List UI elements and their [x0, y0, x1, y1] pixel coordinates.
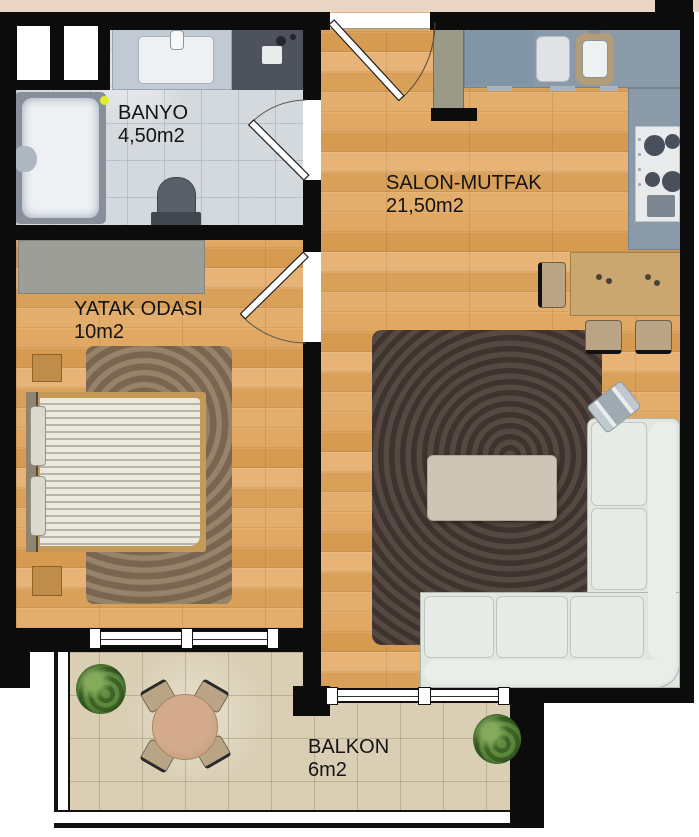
room-name: BALKON — [308, 736, 389, 759]
room-label-yatak-odasi: YATAK ODASI 10m2 — [74, 298, 203, 344]
room-label-salon-mutfak: SALON-MUTFAK 21,50m2 — [386, 172, 542, 218]
door-swing-overlay — [0, 0, 699, 837]
room-name: SALON-MUTFAK — [386, 172, 542, 195]
room-label-banyo: BANYO 4,50m2 — [118, 102, 188, 148]
room-area: 4,50m2 — [118, 125, 188, 148]
bedroom-door-leaf — [240, 252, 308, 319]
room-label-balkon: BALKON 6m2 — [308, 736, 389, 782]
floor-plan: BANYO 4,50m2 SALON-MUTFAK 21,50m2 YATAK … — [0, 0, 699, 837]
room-area: 10m2 — [74, 321, 203, 344]
room-area: 6m2 — [308, 759, 389, 782]
entrance-door-leaf — [329, 20, 404, 101]
room-area: 21,50m2 — [386, 195, 542, 218]
room-name: BANYO — [118, 102, 188, 125]
bathroom-door-leaf — [249, 120, 309, 180]
room-name: YATAK ODASI — [74, 298, 203, 321]
